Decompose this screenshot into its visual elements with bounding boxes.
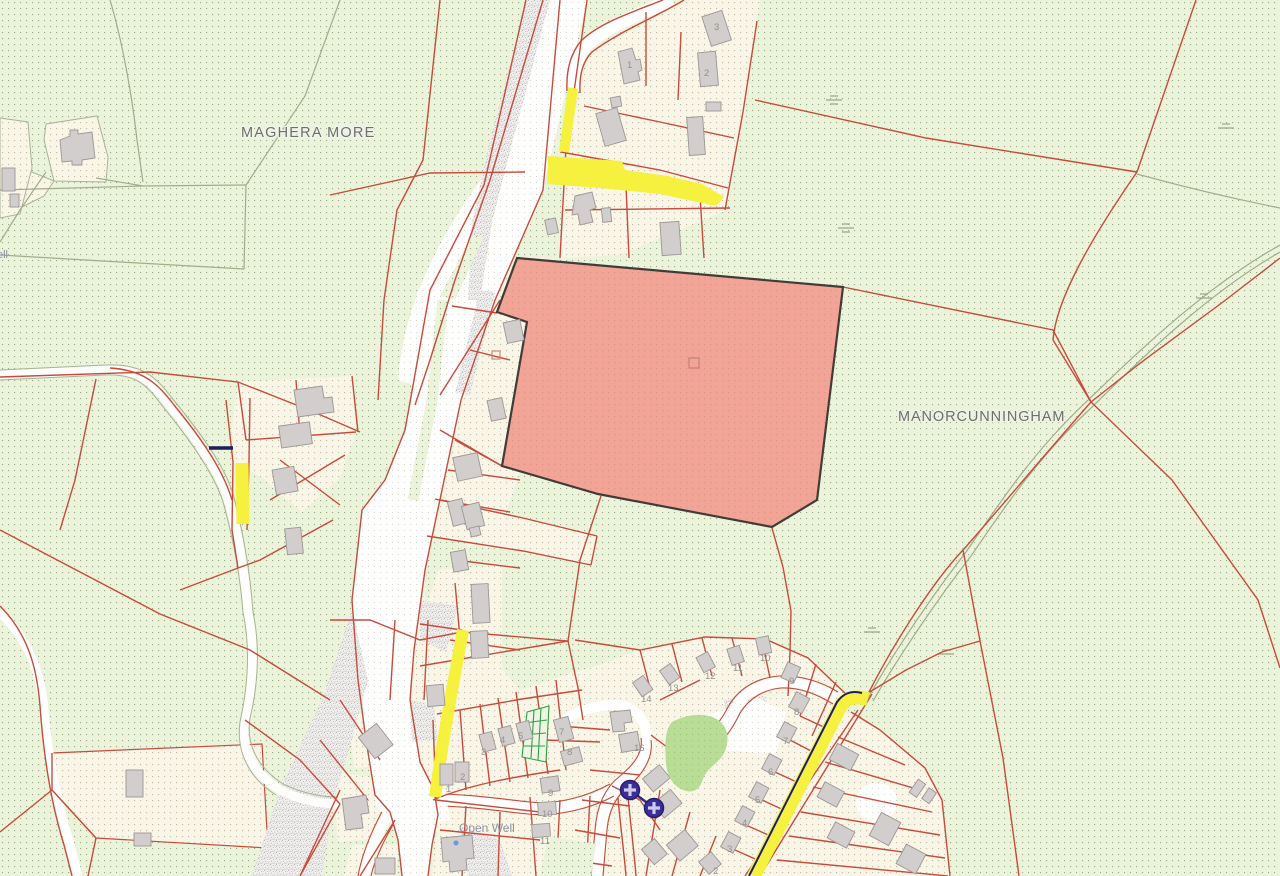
svg-text:7: 7 xyxy=(783,736,788,747)
svg-text:11: 11 xyxy=(540,836,550,847)
svg-text:10: 10 xyxy=(760,653,771,664)
svg-text:10: 10 xyxy=(542,809,553,820)
svg-text:4: 4 xyxy=(500,735,505,746)
svg-text:2: 2 xyxy=(713,866,718,876)
svg-text:12: 12 xyxy=(705,671,716,682)
svg-text:2: 2 xyxy=(460,772,465,783)
svg-text:ell: ell xyxy=(0,249,8,261)
svg-text:14: 14 xyxy=(641,694,652,705)
svg-text:1: 1 xyxy=(627,60,632,71)
svg-text:Open Well: Open Well xyxy=(459,821,515,835)
svg-text:8: 8 xyxy=(794,707,799,718)
svg-text:16: 16 xyxy=(634,743,645,754)
svg-text:3: 3 xyxy=(481,747,486,758)
svg-text:9: 9 xyxy=(789,676,794,687)
svg-text:5: 5 xyxy=(755,795,760,806)
svg-text:4: 4 xyxy=(742,818,747,829)
svg-text:2: 2 xyxy=(704,68,709,79)
svg-text:MAGHERA MORE: MAGHERA MORE xyxy=(241,125,375,141)
svg-text:9: 9 xyxy=(548,788,553,799)
svg-text:8: 8 xyxy=(567,747,572,758)
svg-text:3: 3 xyxy=(727,844,732,855)
svg-text:7: 7 xyxy=(559,727,564,738)
svg-text:13: 13 xyxy=(668,683,679,694)
svg-text:3: 3 xyxy=(714,22,719,33)
svg-text:11: 11 xyxy=(733,663,743,674)
svg-text:5: 5 xyxy=(518,731,523,742)
svg-text:6: 6 xyxy=(768,767,773,778)
svg-text:MANORCUNNINGHAM: MANORCUNNINGHAM xyxy=(898,409,1065,425)
svg-text:1: 1 xyxy=(446,784,451,795)
